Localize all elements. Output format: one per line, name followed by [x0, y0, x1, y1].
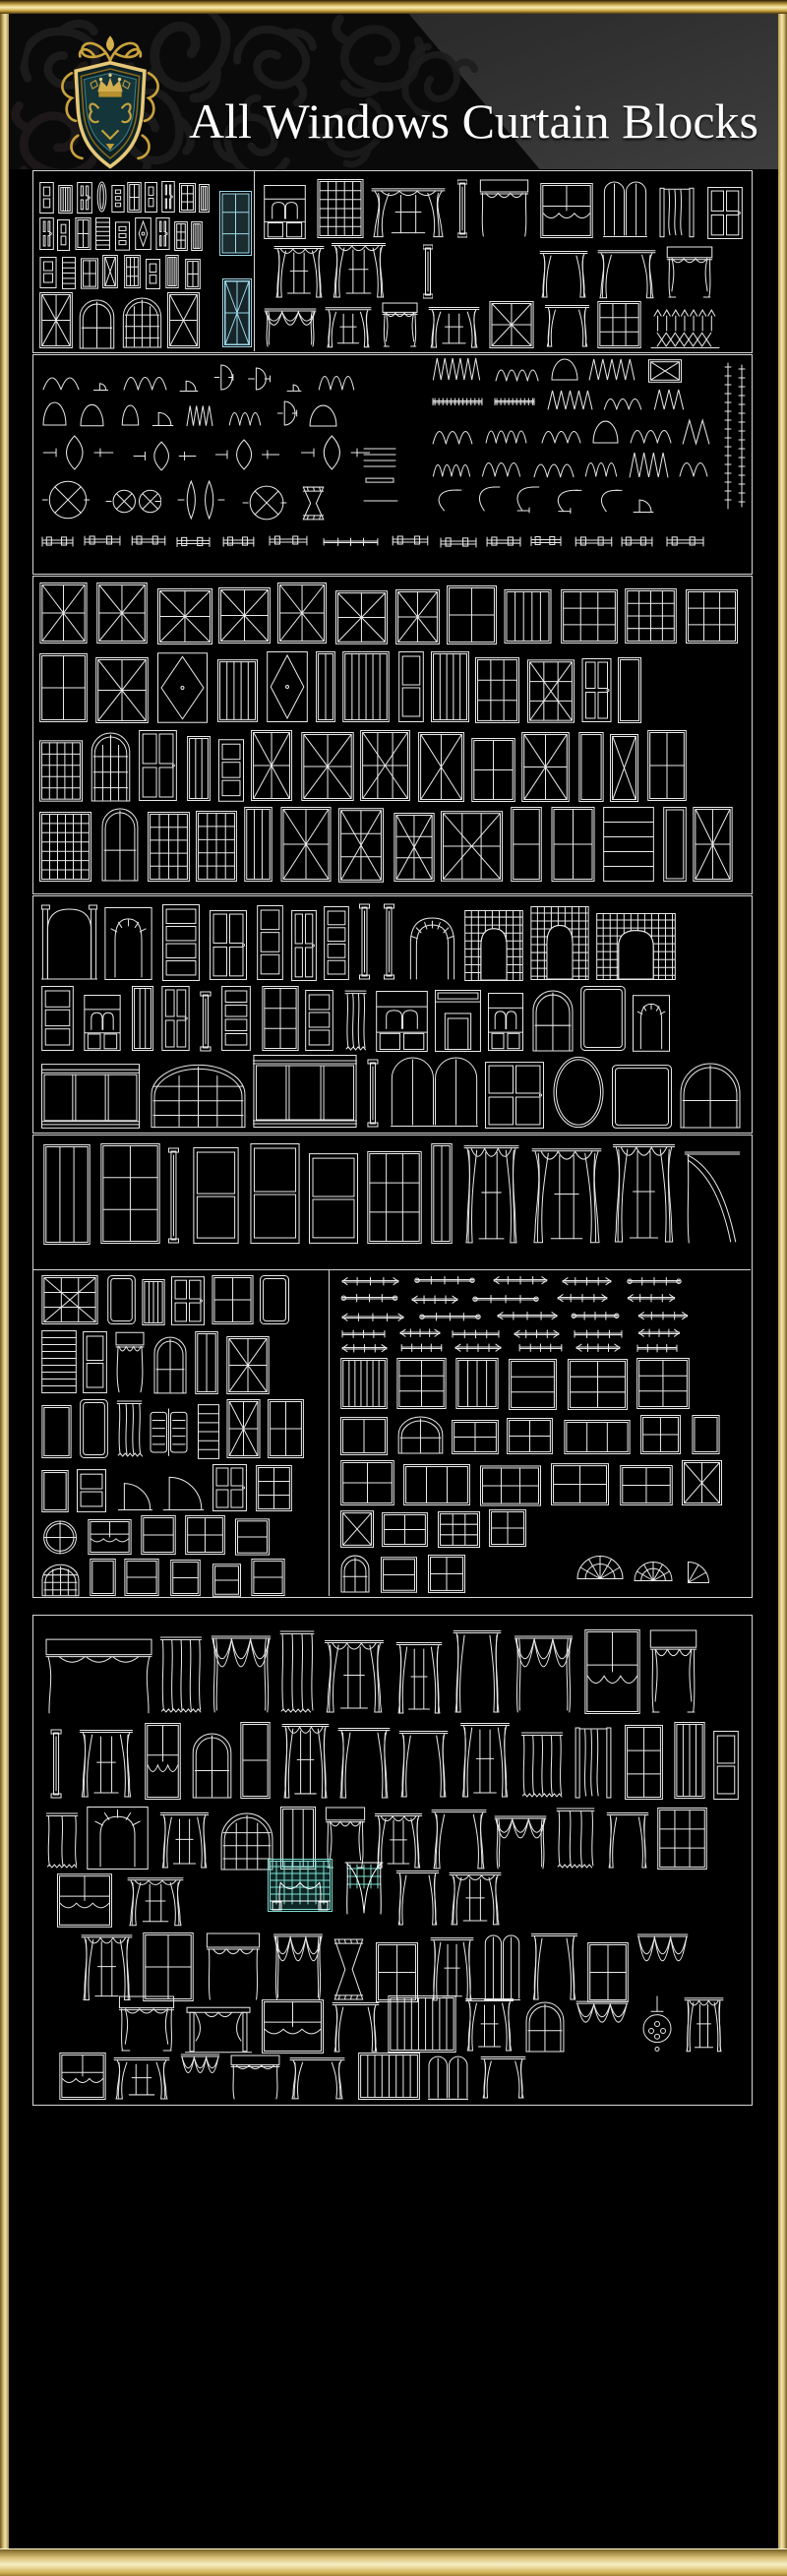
vertical-ruler-strip-icon — [738, 364, 746, 508]
cad-block-arch-icon — [153, 1335, 187, 1394]
cad-block-winx-icon — [95, 657, 149, 723]
cad-block-win-icon — [625, 588, 677, 644]
cad-block-pdoor-icon — [161, 986, 190, 1051]
cad-block-box-icon — [663, 807, 687, 882]
cad-block-sill-icon — [621, 533, 653, 551]
cad-block-pdoor-icon — [155, 217, 170, 250]
cad-block-win-icon — [185, 259, 201, 289]
cad-block-vb-icon — [504, 589, 552, 644]
cad-block-door-icon — [145, 182, 157, 213]
cad-block-win-icon — [382, 1512, 428, 1547]
cad-block-zig-icon — [628, 451, 670, 479]
cad-block-lens-icon — [41, 433, 115, 472]
cad-block-win-icon — [625, 1725, 663, 1800]
cad-block-cx-icon — [41, 478, 91, 521]
cad-block-win-icon — [438, 1511, 480, 1548]
cad-block-curt-icon — [431, 1809, 487, 1871]
cad-block-vb-icon — [165, 255, 179, 288]
cad-block-pil-icon — [358, 903, 371, 980]
cad-block-rod-icon — [561, 1274, 613, 1287]
cad-block-niche-icon — [87, 1807, 149, 1870]
cad-block-pil-icon — [199, 991, 212, 1052]
cad-block-pQ-icon — [116, 1468, 154, 1511]
cad-block-win-icon — [489, 1509, 526, 1547]
cad-block-rod-icon — [451, 1327, 501, 1339]
cad-block-curtS-icon — [81, 1933, 133, 2002]
cad-block-hl-icon — [603, 807, 654, 882]
cad-block-sal-icon — [150, 1403, 188, 1459]
cad-block-pQ-icon — [178, 363, 200, 393]
cad-block-vb-icon — [217, 659, 258, 722]
cad-block-win-icon — [81, 258, 98, 289]
cad-block-win-icon — [240, 1722, 271, 1799]
cad-block-rod-icon — [340, 1274, 400, 1287]
cad-block-winx-icon — [441, 811, 503, 882]
cad-block-rod-icon — [626, 1291, 677, 1304]
cad-block-diam-icon — [157, 652, 208, 723]
cad-block-curt-icon — [332, 2001, 380, 2054]
cad-block-pm-icon — [494, 358, 540, 383]
cad-block-win-icon — [561, 589, 618, 644]
cad-block-pel-icon — [230, 2055, 280, 2101]
cad-block-rod-icon — [496, 1309, 559, 1321]
cad-block-cab-icon — [488, 993, 523, 1051]
cad-block-win-icon — [509, 1359, 557, 1410]
cad-block-pm-icon — [540, 419, 582, 445]
cad-block-winx-icon — [277, 583, 327, 644]
cad-block-oval-icon — [96, 181, 107, 213]
cad-block-curt-icon — [395, 1870, 440, 1927]
cad-block-win-icon — [475, 657, 519, 723]
cad-block-arch-icon — [532, 989, 574, 1052]
cad-block-rod-icon — [573, 1327, 624, 1339]
cad-block-pm-icon — [41, 365, 81, 392]
cad-block-winx-icon — [251, 730, 292, 801]
cad-block-vb-icon — [195, 1331, 218, 1394]
cad-block-win-icon — [75, 217, 91, 250]
cad-block-vb-icon — [244, 807, 272, 882]
cad-block-hl-icon — [41, 1330, 77, 1393]
cad-block-win-icon — [174, 221, 188, 251]
cad-block-vb-icon — [431, 651, 469, 722]
fanlight-block-icon — [575, 1555, 626, 1580]
cad-block-win-icon — [480, 1465, 541, 1506]
cad-block-win-icon — [340, 1460, 394, 1505]
cad-block-curt-icon — [539, 250, 588, 299]
cad-block-win-icon — [256, 1465, 292, 1511]
cad-block-winx-icon — [648, 359, 682, 383]
cad-block-winx-icon — [489, 301, 534, 348]
cad-block-shade-icon — [88, 1519, 132, 1555]
cad-block-pQ-icon — [285, 364, 303, 393]
cad-block-win-icon — [564, 1420, 631, 1454]
cad-block-winx-icon — [393, 813, 435, 882]
cad-block-sill-icon — [84, 531, 121, 551]
cad-block-win-icon — [447, 585, 497, 644]
cad-block-door-icon — [250, 1143, 300, 1244]
cad-block-swagT-icon — [494, 1814, 547, 1871]
cad-block-win-icon — [179, 183, 196, 213]
cad-block-winx-icon — [301, 732, 354, 801]
cad-block-pdoor-icon — [581, 658, 612, 722]
cad-block-door-icon — [83, 1331, 107, 1393]
cad-block-arch-icon — [525, 2000, 565, 2053]
cad-block-winx-icon — [527, 659, 575, 723]
cad-block-door-icon — [324, 906, 349, 980]
cad-block-win-icon — [212, 1275, 254, 1324]
cad-block-curt-icon — [530, 1932, 578, 2001]
cad-block-circ-icon — [41, 1520, 79, 1555]
cad-block-win-icon — [235, 1518, 270, 1556]
cad-block-cx-icon — [242, 483, 287, 522]
cad-block-winx-icon — [157, 588, 212, 644]
cad-block-curtW-icon — [395, 1641, 443, 1715]
cad-block-sill-icon — [440, 534, 477, 552]
cad-block-win-icon — [640, 1415, 681, 1454]
cad-block-pend-icon — [640, 1995, 674, 2053]
cad-block-pD-icon — [246, 366, 272, 392]
cad-block-door-icon — [111, 185, 125, 213]
cad-block-door-icon — [39, 257, 57, 288]
cad-block-arch2-icon — [391, 1055, 478, 1128]
cad-block-pil-icon — [457, 179, 467, 238]
cad-block-pdoor-icon — [139, 730, 177, 801]
cad-block-pm-icon — [122, 364, 168, 392]
cad-block-win-icon — [127, 182, 142, 213]
cad-block-winx-icon — [418, 732, 464, 802]
cad-block-winx-icon — [102, 255, 118, 288]
cad-block-win-icon — [620, 1465, 673, 1505]
cad-block-rod-icon — [636, 1309, 690, 1321]
cad-block-sill-icon — [222, 533, 255, 551]
cad-block-swagT-icon — [211, 1634, 272, 1714]
vertical-ruler-strip-icon — [723, 362, 733, 510]
cad-block-curtW-icon — [428, 306, 480, 349]
cad-block-arch2-icon — [428, 2054, 468, 2101]
cad-block-win-icon — [587, 1942, 629, 2002]
cad-block-winx-icon — [395, 589, 440, 644]
cad-block-sill-icon — [666, 532, 704, 552]
cad-block-vb-icon — [342, 651, 390, 722]
cad-block-arch-icon — [680, 1062, 741, 1129]
cad-block-hl-icon — [62, 257, 76, 289]
highlighted-teal-curtain-window-block-icon — [268, 1859, 333, 1912]
cad-block-sill-icon — [131, 531, 166, 551]
cad-block-mir-icon — [612, 1065, 672, 1129]
cad-block-win-icon — [647, 730, 687, 801]
cad-block-door-icon — [115, 221, 130, 251]
cad-block-mir-icon — [580, 986, 626, 1051]
cad-block-sheer-icon — [344, 989, 367, 1052]
cad-block-pm-icon — [678, 449, 709, 478]
cad-block-win-icon — [124, 1559, 159, 1596]
cad-block-door-icon — [257, 905, 283, 980]
cad-block-win-icon — [148, 812, 190, 882]
cad-block-pm-icon — [480, 449, 522, 478]
cad-block-pQ-icon — [632, 484, 655, 514]
cad-block-sill-icon — [530, 532, 562, 551]
cad-block-diam-icon — [267, 651, 308, 722]
cad-block-win-icon — [381, 1557, 417, 1593]
cad-block-win-icon — [376, 1942, 418, 2002]
cad-block-curtW-icon — [159, 1811, 210, 1870]
cad-block-archL-icon — [220, 1811, 273, 1871]
cad-block-pQ-icon — [151, 399, 175, 427]
cad-block-curtW-icon — [79, 1729, 134, 1799]
cad-block-winx-icon — [96, 583, 148, 644]
cad-block-vb-icon — [58, 185, 73, 214]
cad-block-rod-icon — [492, 1273, 549, 1286]
cad-block-zig-icon — [546, 389, 594, 411]
cad-block-vb-icon — [388, 1995, 456, 2053]
cad-block-door-icon — [162, 904, 200, 981]
stacked-lines-symbol-icon — [360, 445, 401, 506]
cad-block-diam-icon — [135, 217, 151, 250]
cad-block-win-icon — [141, 1515, 176, 1555]
cad-block-rod-icon — [340, 1291, 398, 1304]
cad-block-win-icon — [317, 179, 364, 238]
cad-block-rod-icon — [513, 1327, 561, 1339]
cad-block-win-icon — [41, 1470, 69, 1512]
cad-block-curt-icon — [544, 304, 590, 348]
cad-block-pm-icon — [602, 388, 643, 411]
cad-blocks-canvas — [0, 0, 787, 2576]
cad-block-door-icon — [146, 259, 160, 289]
cad-block-rod-icon — [636, 1342, 679, 1353]
cad-block-zig-icon — [587, 357, 636, 382]
cad-block-vb-icon — [187, 736, 211, 801]
cad-block-adrape-icon — [684, 1150, 741, 1245]
cad-block-pdoor-icon — [707, 187, 743, 239]
cad-block-pel-icon — [206, 1932, 261, 2001]
cad-block-win-icon — [212, 1564, 241, 1597]
cad-block-winx-icon — [360, 730, 410, 801]
cad-block-curtS-icon — [273, 245, 325, 299]
cad-block-pDu-icon — [41, 399, 68, 427]
cad-block-pel-icon — [45, 1638, 152, 1715]
highlighted-cyan-lattice-window-block-icon — [222, 278, 252, 347]
cad-block-trel-icon — [464, 910, 523, 981]
cad-block-winx-icon — [167, 292, 200, 348]
cad-block-pD-icon — [212, 363, 235, 392]
cad-block-hook-icon — [431, 487, 462, 514]
cad-block-pil-icon — [167, 1147, 180, 1244]
cad-block-pm-icon — [629, 417, 673, 445]
cad-block-pel-icon — [479, 179, 529, 238]
cad-block-rod-icon — [414, 1273, 475, 1286]
cad-block-pelD-icon — [382, 302, 418, 348]
cad-block-arch-icon — [79, 298, 115, 349]
cad-block-pDu-icon — [550, 356, 579, 382]
cad-block-pdoor-icon — [77, 182, 92, 214]
cad-block-shade-icon — [57, 1873, 112, 1928]
cad-block-rod-icon — [575, 1341, 622, 1353]
cad-block-win-icon — [396, 1358, 447, 1409]
cad-block-arch-icon — [340, 1554, 370, 1593]
cad-block-sill-icon — [392, 531, 429, 551]
cad-block-vb-icon — [43, 1144, 91, 1245]
cad-block-pel-icon — [115, 1331, 145, 1394]
cad-block-pDu-icon — [308, 402, 338, 428]
cad-block-niche-icon — [104, 907, 152, 980]
cad-block-win-icon — [452, 1420, 499, 1454]
panel1-vertical-divider — [254, 170, 255, 351]
cad-block-pQ-icon — [91, 362, 110, 392]
cad-block-swagT-icon — [514, 1634, 574, 1714]
cad-block-winx-icon — [39, 583, 88, 644]
cad-block-win-icon — [90, 1559, 116, 1596]
cad-block-sheer-icon — [159, 1635, 203, 1714]
cad-block-curtW-icon — [459, 1722, 511, 1799]
cad-block-pm-icon — [583, 449, 619, 478]
cad-block-rod-icon — [627, 1274, 682, 1287]
cad-block-stone-icon — [407, 913, 457, 980]
cad-block-vb-icon — [340, 1358, 388, 1409]
cad-block-winx-icon — [521, 732, 570, 802]
cad-block-cab-icon — [376, 991, 428, 1052]
cad-block-swagT-icon — [264, 307, 317, 348]
cad-block-pm-icon — [431, 418, 474, 446]
cad-block-sill-icon — [575, 533, 613, 551]
cad-block-win-icon — [578, 732, 604, 802]
cad-block-winx-icon — [39, 292, 73, 348]
cad-block-arch-icon — [192, 1732, 232, 1799]
cad-block-win-icon — [262, 986, 299, 1051]
cad-block-pQ-icon — [161, 1464, 206, 1511]
cad-block-cab-icon — [264, 185, 306, 239]
cad-block-pdoor-icon — [171, 1276, 205, 1325]
cad-block-winx-icon — [226, 1399, 261, 1458]
cad-block-sheer-icon — [116, 1399, 143, 1458]
cad-block-win-icon — [124, 255, 141, 288]
cad-block-big3-icon — [253, 1055, 357, 1128]
cad-block-sill-icon — [176, 533, 211, 552]
cad-block-big3-icon — [41, 1064, 140, 1129]
cad-block-winx-icon — [280, 807, 332, 882]
cad-block-curt-icon — [398, 1730, 449, 1799]
cad-block-curtS-icon — [449, 1871, 502, 1927]
cad-block-curt-icon — [289, 2056, 345, 2101]
cad-block-win-icon — [41, 1405, 72, 1458]
cad-block-pelD-icon — [118, 1995, 175, 2053]
cad-block-swagT-icon — [272, 1932, 324, 2001]
cad-block-cx-icon — [105, 480, 161, 522]
fanlight-block-icon — [632, 1561, 675, 1582]
cad-block-zig-icon — [681, 418, 711, 446]
cad-block-win-icon — [507, 1418, 553, 1454]
cad-block-curt-icon — [337, 1727, 391, 1800]
cad-block-pelD-icon — [666, 246, 713, 299]
cad-block-hook-icon — [472, 484, 501, 514]
cad-block-vb-icon — [358, 2053, 420, 2100]
cad-block-pdoor-icon — [485, 1062, 544, 1129]
cad-block-sheer-icon — [45, 1811, 79, 1870]
cad-block-hl-icon — [95, 217, 110, 250]
cad-block-archL-icon — [122, 296, 162, 348]
cad-block-win-icon — [185, 1515, 225, 1555]
cad-block-curt-icon — [453, 1629, 502, 1714]
cad-block-lens2-icon — [176, 478, 226, 521]
cad-block-arch-icon — [101, 807, 139, 882]
cad-block-pD-icon — [275, 399, 299, 427]
cad-block-oval-icon — [553, 1056, 604, 1129]
cad-block-pm-icon — [317, 362, 356, 392]
cad-block-curtS-icon — [684, 1996, 724, 2054]
cad-block-curtS-icon — [371, 187, 446, 239]
thin-pillar-block-icon — [423, 244, 433, 299]
cad-block-curtS-icon — [127, 1876, 184, 1928]
cad-block-pdoor-icon — [210, 910, 247, 980]
cad-block-sill-icon — [269, 531, 308, 551]
cad-block-niche-icon — [633, 995, 670, 1052]
cad-block-sill-icon — [41, 532, 74, 552]
cad-block-rod-icon — [340, 1342, 389, 1353]
cad-block-curtW-icon — [430, 1936, 474, 2002]
cad-block-zig-icon — [431, 356, 482, 382]
cad-block-door-icon — [41, 986, 74, 1051]
cad-block-pil-icon — [382, 903, 396, 980]
cad-block-tbl-icon — [185, 2003, 252, 2054]
cad-block-win-icon — [428, 1555, 465, 1593]
cad-block-arch2-icon — [603, 179, 647, 238]
cad-block-archL-icon — [151, 1063, 246, 1129]
panel5-horizontal-divider — [32, 1269, 751, 1270]
cad-block-vb-icon — [199, 184, 210, 213]
cad-block-win-icon — [551, 1463, 609, 1505]
cad-block-curtS-icon — [331, 242, 387, 299]
cad-block-winx-icon — [340, 1510, 374, 1548]
cad-block-win-icon — [100, 1143, 160, 1244]
cad-block-winx-icon — [338, 808, 384, 883]
cad-block-door-icon — [398, 651, 424, 722]
cad-block-rod-icon — [517, 1341, 564, 1353]
cad-block-shade-icon — [145, 1723, 181, 1800]
cad-block-cab-icon — [84, 995, 121, 1051]
cad-block-win-icon — [403, 1464, 470, 1505]
highlighted-teal-sheer-curtain-block-icon — [344, 1861, 384, 1916]
cad-block-rod-icon — [410, 1293, 459, 1305]
cad-block-pDu-icon — [79, 401, 105, 428]
cad-block-shade-icon — [540, 183, 593, 238]
cad-block-rod-icon — [398, 1326, 442, 1338]
cad-block-vb-icon — [142, 1279, 165, 1325]
cad-block-curtW-icon — [325, 306, 372, 349]
cad-block-vb-icon — [132, 986, 153, 1051]
cad-block-door-icon — [57, 219, 70, 251]
cad-block-pdoor-icon — [39, 217, 54, 250]
cad-block-winx-icon — [226, 1336, 270, 1394]
cad-block-pDu-icon — [120, 402, 141, 427]
cad-block-hour-icon — [331, 1936, 367, 2002]
cad-block-mir-icon — [107, 1275, 136, 1324]
cad-block-win-icon — [636, 1358, 690, 1409]
cad-block-lens-icon — [213, 437, 281, 472]
cad-block-sheer-icon — [279, 1629, 315, 1714]
cad-block-archL-icon — [91, 731, 131, 802]
cad-block-pm-icon — [532, 451, 575, 479]
cad-block-door-icon — [221, 986, 251, 1051]
cad-block-curtS-icon — [324, 1639, 385, 1714]
cad-block-zig-icon — [185, 403, 214, 428]
cad-block-win-icon — [39, 740, 83, 802]
cad-block-rod-icon — [571, 1309, 620, 1321]
cad-block-arch2-icon — [484, 1932, 520, 2001]
cad-block-rod-icon — [454, 1341, 503, 1353]
cad-block-win-icon — [39, 653, 88, 722]
highlighted-cyan-window-block-icon — [219, 191, 252, 256]
cad-block-rod-icon — [419, 1310, 481, 1322]
cad-block-archL-icon — [41, 1563, 80, 1597]
